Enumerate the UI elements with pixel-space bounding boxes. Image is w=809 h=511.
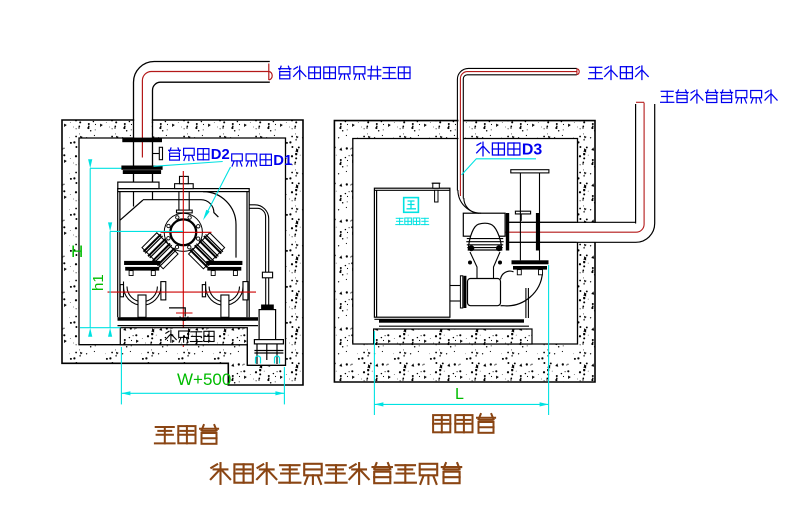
svg-text:H: H [71, 242, 83, 261]
svg-text:D1: D1 [273, 153, 292, 169]
svg-text:D2: D2 [211, 147, 230, 163]
svg-text:h1: h1 [90, 274, 107, 291]
svg-text:D3: D3 [522, 141, 542, 158]
svg-text:L: L [455, 386, 464, 403]
svg-text:W+500: W+500 [177, 370, 231, 389]
